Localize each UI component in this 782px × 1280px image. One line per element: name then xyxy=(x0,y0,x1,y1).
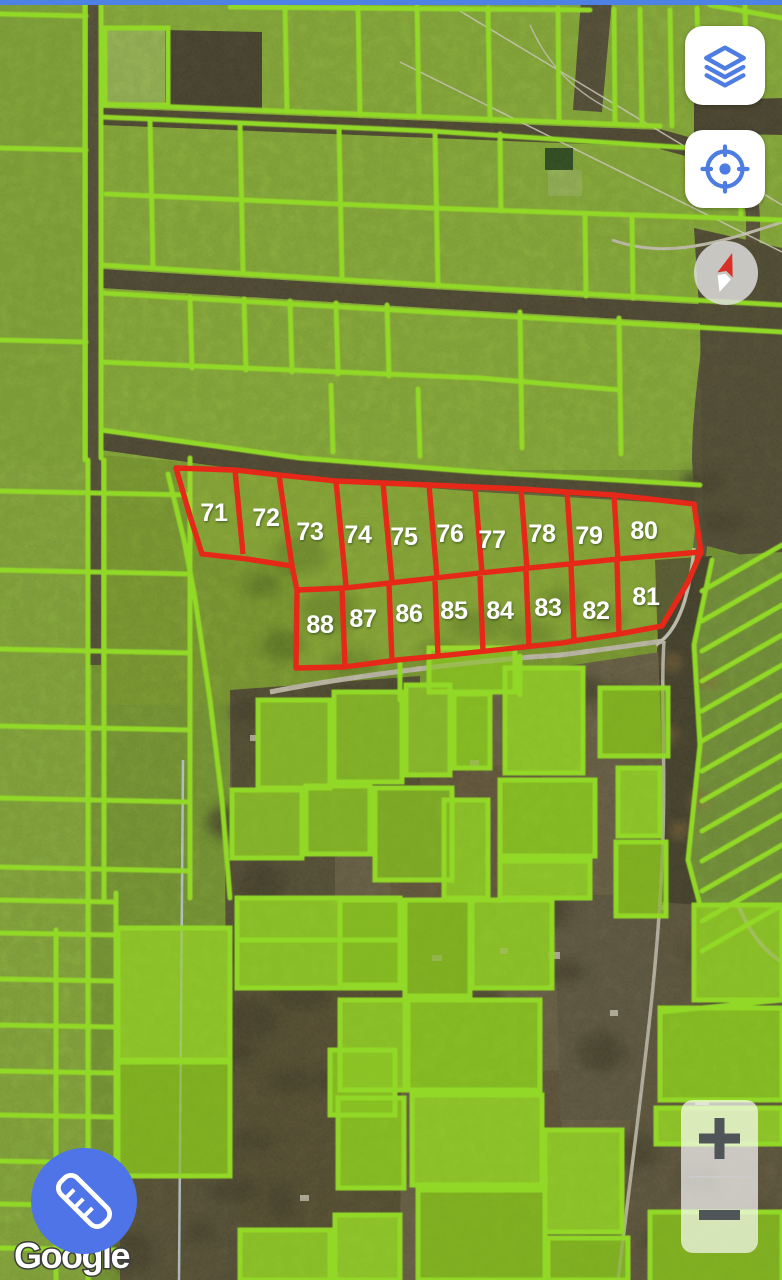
svg-text:74: 74 xyxy=(344,521,372,549)
svg-text:80: 80 xyxy=(630,517,657,545)
svg-text:85: 85 xyxy=(440,597,468,625)
svg-text:72: 72 xyxy=(252,504,279,532)
svg-text:82: 82 xyxy=(582,597,609,625)
svg-text:81: 81 xyxy=(632,583,660,611)
svg-text:83: 83 xyxy=(534,594,561,622)
svg-text:88: 88 xyxy=(306,611,334,639)
svg-text:77: 77 xyxy=(478,526,505,554)
svg-text:84: 84 xyxy=(486,597,514,625)
svg-text:75: 75 xyxy=(390,523,418,551)
svg-text:76: 76 xyxy=(436,520,463,548)
svg-text:86: 86 xyxy=(395,600,422,628)
svg-text:73: 73 xyxy=(296,518,323,546)
svg-text:87: 87 xyxy=(349,605,376,633)
svg-text:79: 79 xyxy=(575,522,602,550)
svg-text:71: 71 xyxy=(200,499,228,527)
svg-text:78: 78 xyxy=(528,520,556,548)
